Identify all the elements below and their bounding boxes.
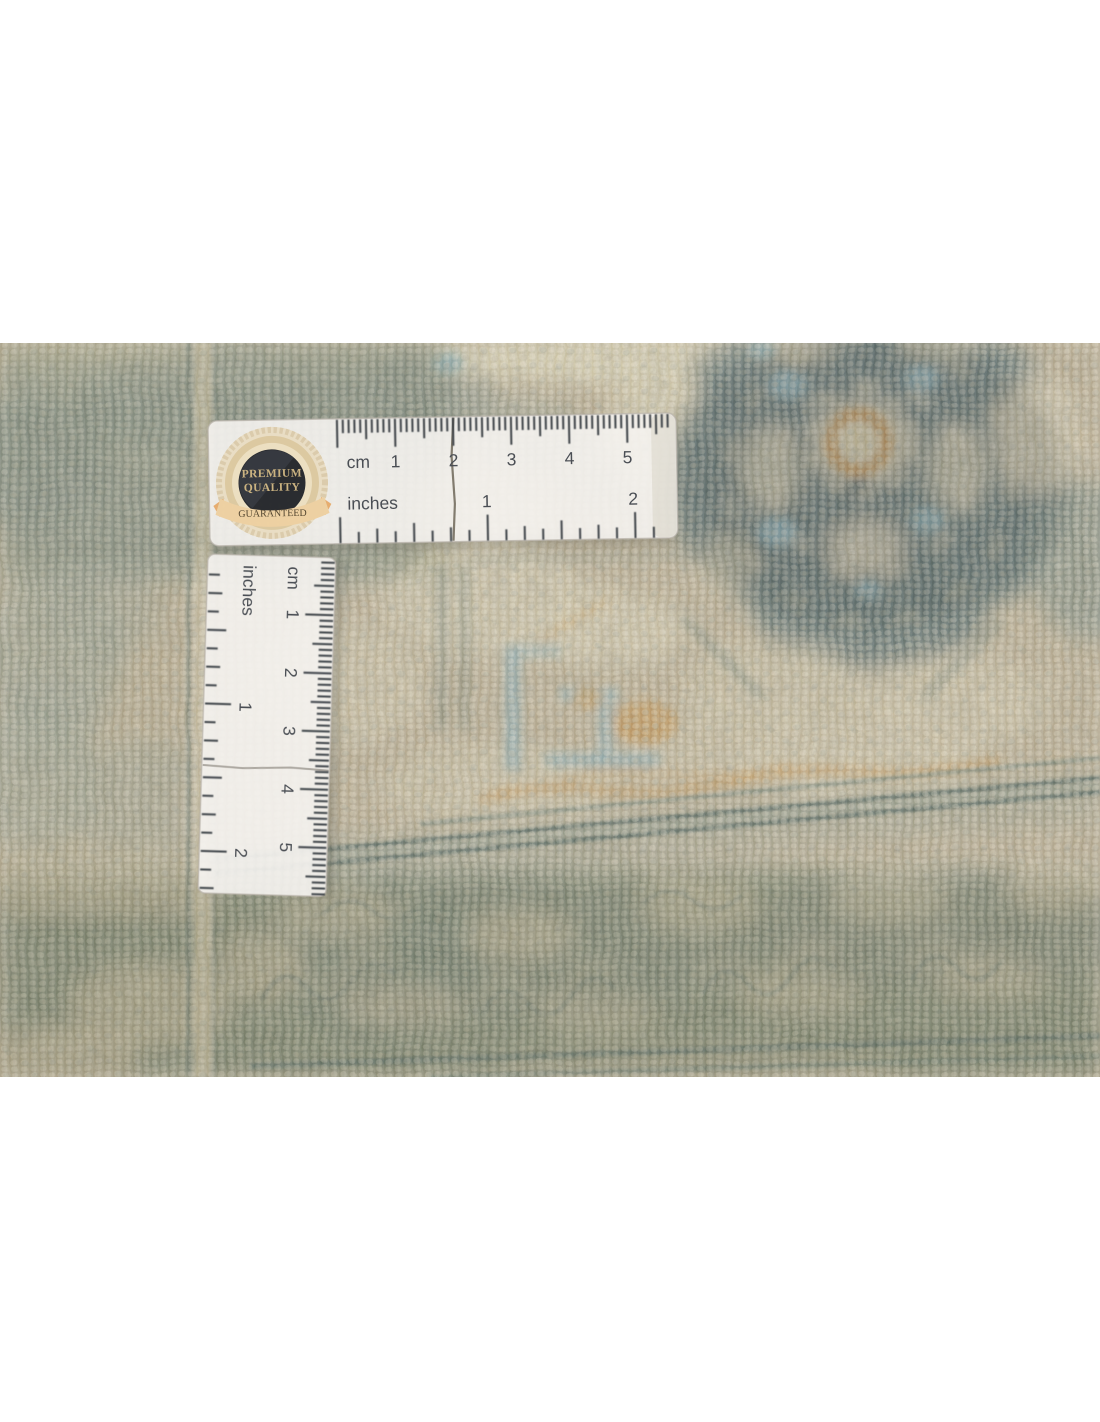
- svg-text:PREMIUM: PREMIUM: [242, 467, 302, 480]
- svg-text:cm: cm: [346, 452, 370, 472]
- svg-text:2: 2: [448, 450, 458, 470]
- svg-text:5: 5: [276, 842, 296, 852]
- svg-text:3: 3: [279, 726, 299, 736]
- svg-text:1: 1: [235, 702, 255, 712]
- svg-text:1: 1: [482, 491, 492, 511]
- svg-text:GUARANTEED: GUARANTEED: [238, 508, 307, 520]
- svg-text:4: 4: [277, 784, 297, 795]
- svg-text:1: 1: [283, 609, 303, 619]
- svg-text:1: 1: [390, 451, 400, 471]
- svg-text:4: 4: [564, 448, 574, 468]
- svg-text:inches: inches: [347, 493, 398, 514]
- svg-text:2: 2: [628, 489, 638, 509]
- svg-text:inches: inches: [238, 565, 259, 616]
- svg-text:3: 3: [506, 449, 516, 469]
- svg-text:cm: cm: [283, 566, 304, 590]
- svg-text:2: 2: [281, 668, 301, 678]
- svg-text:5: 5: [622, 447, 632, 467]
- svg-text:QUALITY: QUALITY: [244, 481, 301, 494]
- svg-text:2: 2: [231, 848, 251, 858]
